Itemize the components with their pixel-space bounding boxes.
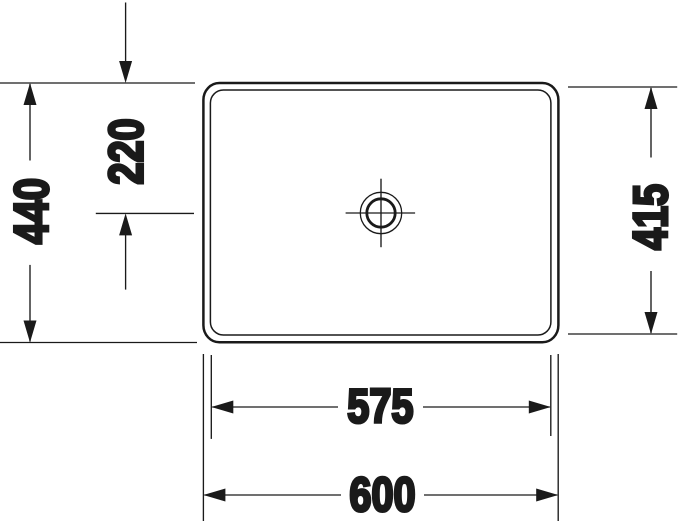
svg-text:575: 575: [347, 380, 413, 434]
svg-text:440: 440: [5, 178, 59, 244]
svg-text:415: 415: [625, 184, 679, 250]
svg-text:600: 600: [349, 468, 415, 522]
svg-text:220: 220: [100, 118, 154, 184]
